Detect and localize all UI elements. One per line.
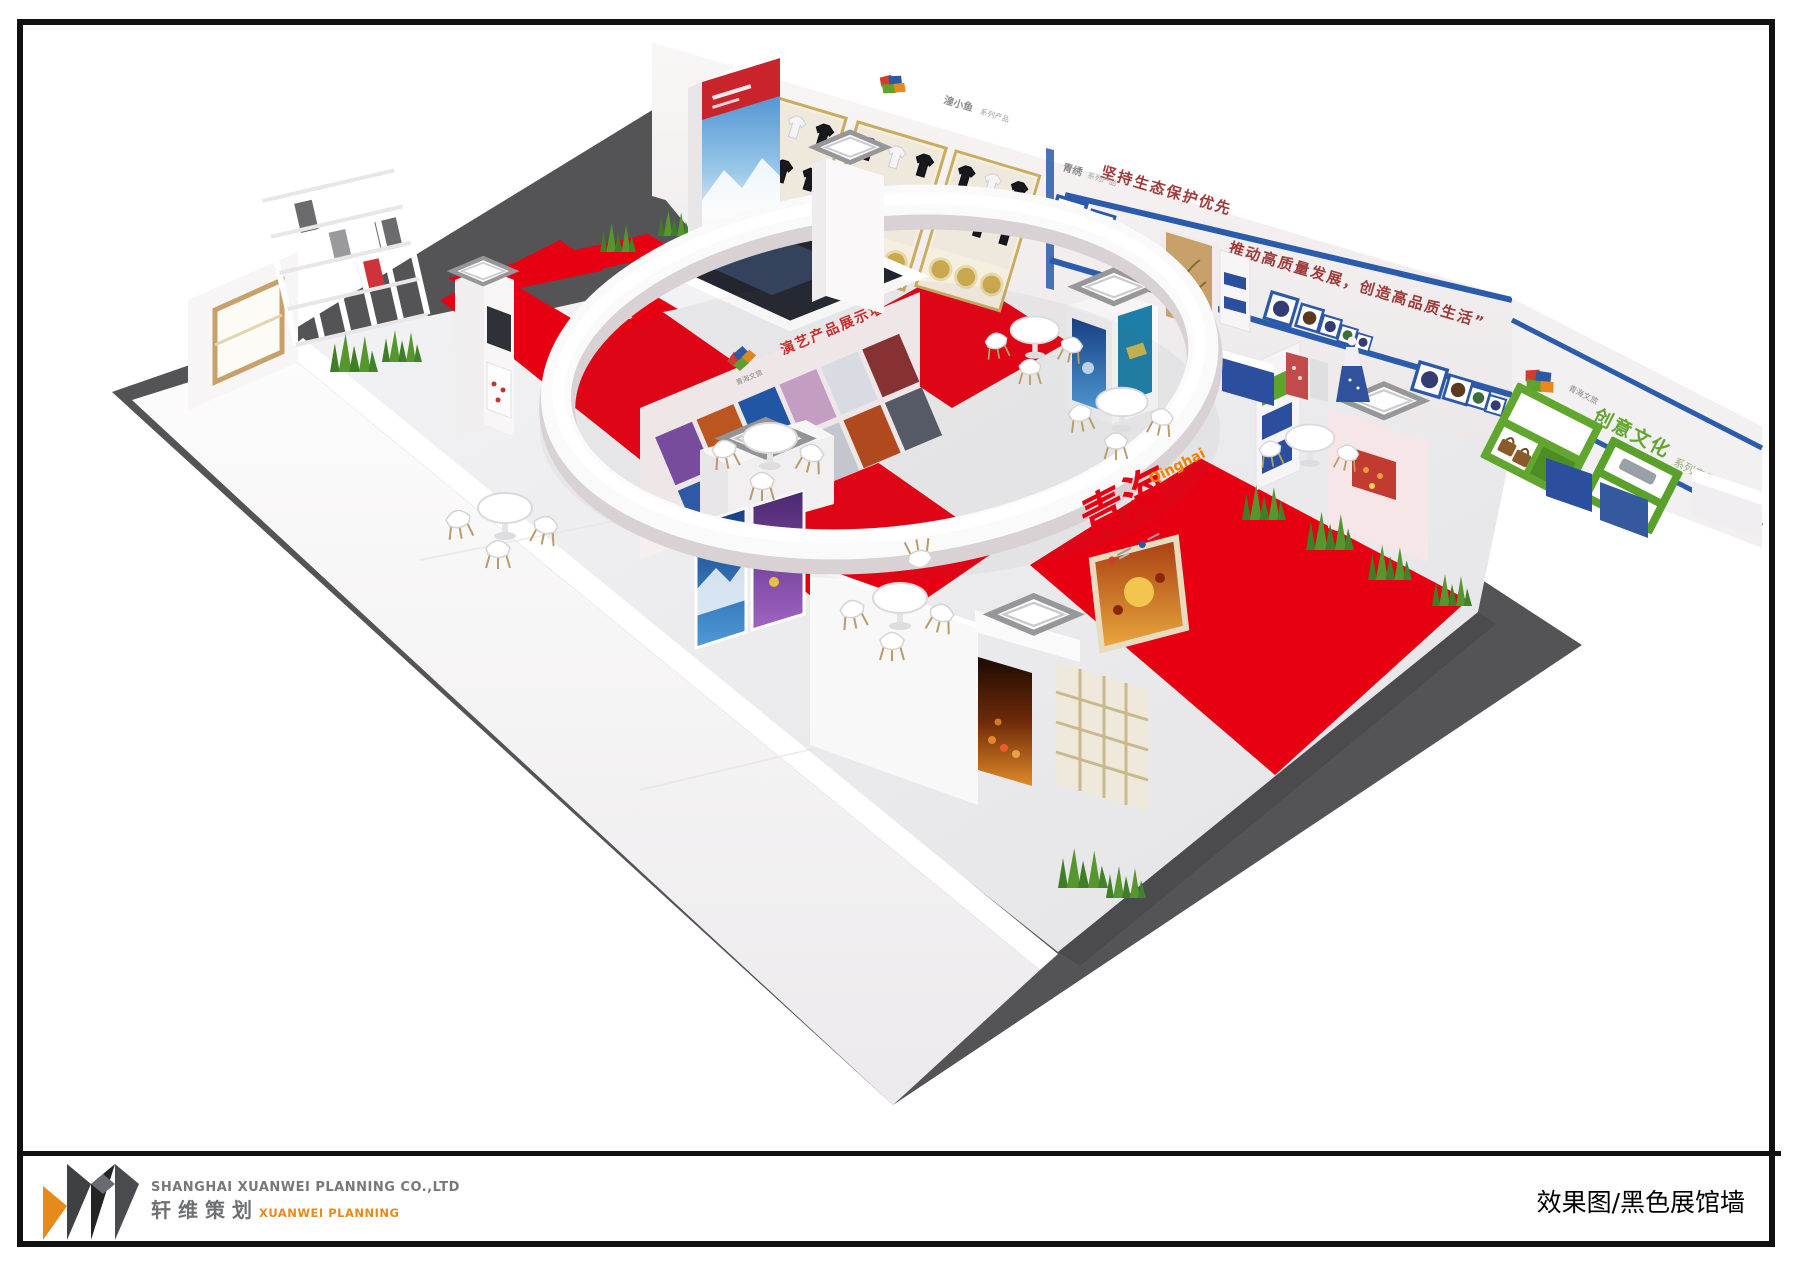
sign1-series: 系列产品 <box>979 106 1011 124</box>
footer-divider <box>17 1151 1781 1156</box>
picture-frame <box>1412 362 1447 397</box>
brand-logo-icon <box>876 70 910 99</box>
xuanwei-logo-icon <box>41 1160 141 1242</box>
company-name-en: SHANGHAI XUANWEI PLANNING CO.,LTD <box>151 1181 460 1195</box>
thangka-artwork <box>1092 538 1186 650</box>
shelf-blue-bins <box>1220 250 1250 332</box>
brand-name-en: XUANWEI PLANNING <box>259 1207 399 1220</box>
lattice-shelving <box>262 168 427 345</box>
render-page: 坚持生态保护优先 推动高质量发展，创造高品质生活” 湟小鱼 系列产品 青绣 系列… <box>0 0 1800 1273</box>
title-block: SHANGHAI XUANWEI PLANNING CO.,LTD 轩维策划 X… <box>23 1158 1773 1244</box>
dancers-photo <box>978 657 1032 786</box>
exhibition-render: 坚持生态保护优先 推动高质量发展，创造高品质生活” 湟小鱼 系列产品 青绣 系列… <box>0 0 1800 1273</box>
company-name-cn: 轩维策划 <box>151 1199 259 1221</box>
right-wall: 青海文旅 创意文化 系列产品 <box>1480 296 1762 548</box>
media-column <box>452 258 514 436</box>
company-text-block: SHANGHAI XUANWEI PLANNING CO.,LTD 轩维策划 X… <box>151 1181 460 1220</box>
drawing-caption: 效果图/黑色展馆墙 <box>1537 1183 1745 1219</box>
sign1-brand: 湟小鱼 <box>942 93 974 114</box>
picture-frame <box>1264 292 1298 326</box>
